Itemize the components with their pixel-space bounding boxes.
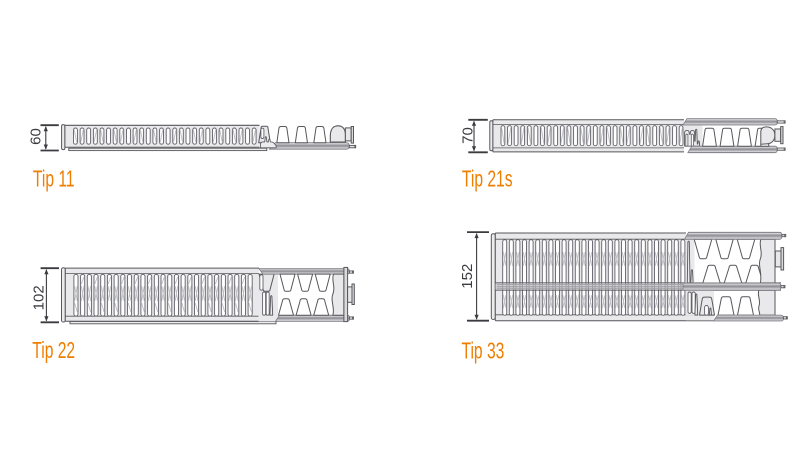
svg-text:70: 70 (459, 127, 476, 144)
svg-text:102: 102 (31, 285, 48, 310)
svg-text:Tip 33: Tip 33 (462, 339, 505, 365)
svg-text:60: 60 (28, 128, 45, 145)
svg-text:152: 152 (459, 264, 476, 289)
svg-text:Tip 11: Tip 11 (33, 166, 75, 192)
svg-text:Tip 21s: Tip 21s (462, 166, 513, 192)
svg-text:Tip 22: Tip 22 (32, 338, 75, 364)
